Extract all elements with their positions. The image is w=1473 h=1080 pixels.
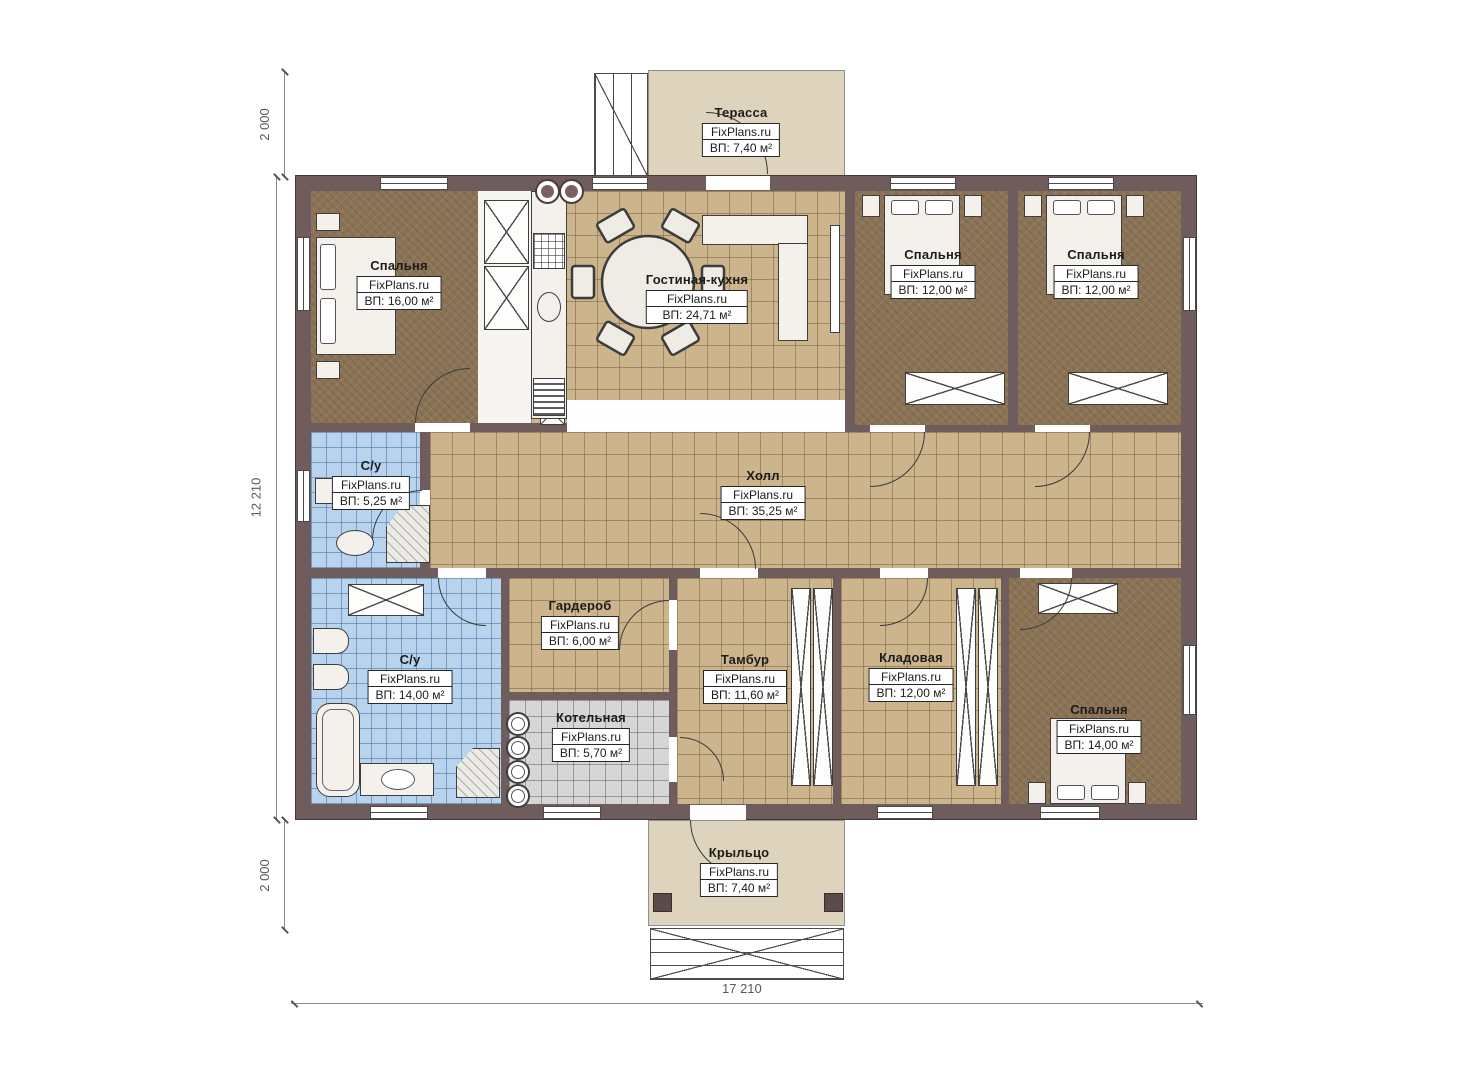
room-name: Тамбур (703, 652, 787, 667)
room-name: Крыльцо (700, 845, 778, 860)
pillow (1057, 785, 1085, 800)
opening-storage (880, 568, 928, 578)
label-bath-small: С/у FixPlans.ru ВП: 5,25 м² (332, 458, 410, 510)
dim-line-left-top (284, 72, 285, 177)
sofa-symbol-chaise (778, 243, 808, 341)
porch-post-right (824, 893, 843, 912)
room-name: Спальня (1057, 702, 1142, 717)
boiler-unit (506, 760, 530, 784)
kitchen-sink (537, 292, 561, 322)
label-storage: Кладовая FixPlans.ru ВП: 12,00 м² (869, 650, 954, 702)
terrace-steps (594, 73, 648, 176)
opening-bedroom-tl (415, 423, 470, 432)
window-bath-small-left (297, 470, 310, 522)
nightstand (1024, 195, 1042, 217)
area-badge: ВП: 35,25 м² (721, 502, 806, 520)
opening-porch-door (690, 805, 746, 820)
tv-panel (830, 225, 840, 333)
stove-burner (535, 179, 560, 204)
area-badge: ВП: 12,00 м² (891, 281, 976, 299)
window-bedroom-br-right (1183, 645, 1196, 715)
room-name: Гардероб (541, 598, 619, 613)
brand-badge: FixPlans.ru (1057, 720, 1142, 738)
area-badge: ВП: 24,71 м² (646, 306, 748, 324)
pillow (891, 200, 919, 215)
area-badge: ВП: 7,40 м² (700, 879, 778, 897)
closet-storage-2 (978, 588, 998, 786)
pillow (1091, 785, 1119, 800)
brand-badge: FixPlans.ru (332, 476, 410, 494)
room-name: Спальня (891, 247, 976, 262)
nightstand (1128, 782, 1146, 804)
dim-label-left-middle: 12 210 (248, 478, 263, 518)
bathtub-inner (322, 709, 354, 791)
label-boiler: Котельная FixPlans.ru ВП: 5,70 м² (552, 710, 630, 762)
window-bedroom-tl-top (380, 177, 448, 190)
closet-storage-1 (956, 588, 976, 786)
brand-badge: FixPlans.ru (646, 290, 748, 308)
closet-bedroom-t2 (1068, 372, 1168, 405)
pillow (1087, 200, 1115, 215)
room-name: Кладовая (869, 650, 954, 665)
closet-bedroom-tl-1 (484, 200, 529, 264)
opening-bedroom-t2 (1035, 425, 1090, 432)
pillow (925, 200, 953, 215)
room-name: С/у (368, 652, 453, 667)
brand-badge: FixPlans.ru (869, 668, 954, 686)
label-vestibule: Тамбур FixPlans.ru ВП: 11,60 м² (703, 652, 787, 704)
label-porch: Крыльцо FixPlans.ru ВП: 7,40 м² (700, 845, 778, 897)
nightstand (316, 361, 340, 379)
window-bedroom-t2-right (1183, 237, 1196, 311)
opening-vestibule-hall (700, 568, 758, 578)
window-bedroom-tl-left (297, 237, 310, 311)
closet-bedroom-tl-2 (484, 266, 529, 330)
nightstand (316, 213, 340, 231)
nightstand (1126, 195, 1144, 217)
brand-badge: FixPlans.ru (541, 616, 619, 634)
brand-badge: FixPlans.ru (552, 728, 630, 746)
label-bedroom-tl: Спальня FixPlans.ru ВП: 16,00 м² (357, 258, 442, 310)
radiator-bath-big (348, 584, 424, 616)
window-bedroom-br-bottom (1040, 806, 1100, 819)
opening-boiler (669, 737, 677, 782)
dim-line-left-middle (276, 177, 277, 820)
brand-badge: FixPlans.ru (700, 863, 778, 881)
nightstand (964, 195, 982, 217)
brand-badge: FixPlans.ru (1054, 265, 1139, 283)
opening-bath-big (438, 568, 486, 578)
opening-living-hall (567, 400, 845, 432)
oven-symbol (533, 233, 565, 269)
label-bedroom-t2: Спальня FixPlans.ru ВП: 12,00 м² (1054, 247, 1139, 299)
dim-line-bottom (291, 1003, 1203, 1004)
room-name: Спальня (357, 258, 442, 273)
stove-burner (559, 179, 584, 204)
room-name: Гостиная-кухня (646, 272, 748, 287)
label-bath-big: С/у FixPlans.ru ВП: 14,00 м² (368, 652, 453, 704)
boiler-unit (506, 784, 530, 808)
window-bath-big-bottom (370, 806, 428, 819)
window-boiler-bottom (543, 806, 601, 819)
area-badge: ВП: 5,70 м² (552, 744, 630, 762)
window-bedroom-t1-top (890, 177, 956, 190)
brand-badge: FixPlans.ru (703, 670, 787, 688)
window-kitchen-top (592, 177, 648, 190)
nightstand (862, 195, 880, 217)
opening-terrace-door (706, 176, 770, 190)
label-bedroom-br: Спальня FixPlans.ru ВП: 14,00 м² (1057, 702, 1142, 754)
dim-label-bottom: 17 210 (722, 981, 762, 996)
closet-bedroom-t1 (905, 372, 1005, 405)
dim-line-left-bottom (284, 820, 285, 930)
area-badge: ВП: 7,40 м² (702, 139, 780, 157)
pillow (320, 298, 336, 344)
area-badge: ВП: 12,00 м² (1054, 281, 1139, 299)
dim-label-left-top: 2 000 (257, 108, 272, 141)
room-name: Котельная (552, 710, 630, 725)
area-badge: ВП: 11,60 м² (703, 686, 787, 704)
window-bedroom-t2-top (1048, 177, 1114, 190)
closet-vestibule-1 (791, 588, 811, 786)
label-terrace: Терасса FixPlans.ru ВП: 7,40 м² (702, 105, 780, 157)
window-storage-bottom (877, 806, 933, 819)
sink-counter (360, 763, 434, 796)
closet-vestibule-2 (813, 588, 833, 786)
label-living-kitchen: Гостиная-кухня FixPlans.ru ВП: 24,71 м² (646, 272, 748, 324)
area-badge: ВП: 5,25 м² (332, 492, 410, 510)
sink-bowl (381, 769, 415, 790)
label-bedroom-t1: Спальня FixPlans.ru ВП: 12,00 м² (891, 247, 976, 299)
room-name: С/у (332, 458, 410, 473)
toilet-symbol (313, 628, 349, 654)
brand-badge: FixPlans.ru (368, 670, 453, 688)
label-hall: Холл FixPlans.ru ВП: 35,25 м² (721, 468, 806, 520)
opening-bedroom-t1 (870, 425, 925, 432)
pillow (1053, 200, 1081, 215)
toilet-symbol (313, 664, 349, 690)
brand-badge: FixPlans.ru (891, 265, 976, 283)
area-badge: ВП: 14,00 м² (368, 686, 453, 704)
boiler-unit (506, 736, 530, 760)
fridge-symbol (533, 378, 565, 416)
porch-steps (650, 928, 844, 980)
nightstand (1028, 782, 1046, 804)
washbasin-symbol (336, 530, 374, 556)
area-badge: ВП: 16,00 м² (357, 292, 442, 310)
area-badge: ВП: 6,00 м² (541, 632, 619, 650)
area-badge: ВП: 12,00 м² (869, 684, 954, 702)
brand-badge: FixPlans.ru (702, 123, 780, 141)
opening-wardrobe (669, 600, 677, 650)
bathtub-symbol (316, 703, 360, 797)
area-badge: ВП: 14,00 м² (1057, 736, 1142, 754)
sofa-symbol (702, 215, 808, 245)
room-name: Спальня (1054, 247, 1139, 262)
brand-badge: FixPlans.ru (357, 276, 442, 294)
brand-badge: FixPlans.ru (721, 486, 806, 504)
opening-bedroom-br (1020, 568, 1072, 578)
boiler-unit (506, 712, 530, 736)
dim-label-left-bottom: 2 000 (257, 859, 272, 892)
porch-post-left (653, 893, 672, 912)
pillow (320, 244, 336, 290)
label-wardrobe: Гардероб FixPlans.ru ВП: 6,00 м² (541, 598, 619, 650)
room-name: Холл (721, 468, 806, 483)
room-name: Терасса (702, 105, 780, 120)
